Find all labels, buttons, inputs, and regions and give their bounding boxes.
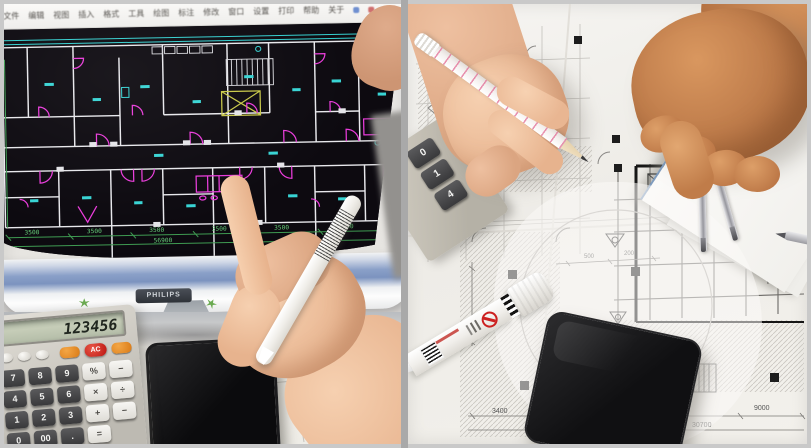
calc-key: 3: [59, 406, 83, 425]
calc-key: 2: [32, 408, 56, 427]
calculator-orange-key: [59, 346, 80, 359]
calculator-round-key: [35, 350, 49, 360]
dim-label: 3500: [149, 227, 164, 234]
calc-key: =: [87, 425, 111, 444]
calc-key: 4: [4, 390, 27, 409]
calc-key: +: [85, 404, 109, 423]
calculator-keypad: 7 8 9 % − 4 5 6 × ÷ 1 2 3 + − 0 00 . =: [4, 359, 140, 444]
calc-key: %: [82, 362, 106, 381]
calculator-orange-key: [111, 341, 132, 354]
menu-item: 工具: [128, 8, 144, 19]
calc-key: 6: [57, 385, 81, 404]
pencil-lead: [580, 155, 590, 164]
marker-red-logo-icon: [479, 309, 501, 331]
menu-item: 帮助: [303, 5, 319, 16]
calc-key: ÷: [110, 380, 134, 399]
dim-label: 3500: [87, 228, 102, 235]
menu-item: 修改: [203, 7, 219, 18]
dim-total-label: 56900: [154, 237, 173, 244]
calc-key: 8: [28, 366, 52, 385]
menu-item: 编辑: [28, 10, 44, 21]
menu-item: 关于: [328, 4, 344, 15]
menu-item: 插入: [78, 9, 94, 20]
calc-key: 9: [55, 364, 79, 383]
calc-key: 5: [30, 387, 54, 406]
blueprint-photo-panel: 500 200 3400 9000 30700 0 1 4: [408, 4, 807, 444]
monitor-brand-badge: PHILIPS: [136, 288, 192, 303]
calculator-round-key: [4, 353, 13, 363]
calculator: 123456 AC 7 8 9 % − 4 5 6 × ÷: [4, 304, 149, 444]
menu-item: 绘图: [153, 8, 169, 19]
menu-item: 格式: [103, 9, 119, 20]
calculator-ac-key: AC: [84, 343, 107, 358]
menu-item: 打印: [278, 5, 294, 16]
calculator-round-key: [18, 351, 32, 361]
marker-label-text: [474, 320, 481, 330]
menu-item: 文件: [4, 11, 19, 22]
calc-key: 1: [5, 411, 29, 430]
menu-item: 视图: [53, 10, 69, 21]
calc-key: ×: [84, 383, 108, 402]
calc-key: −: [109, 359, 133, 378]
menu-item: 设置: [253, 6, 269, 17]
calc-key: .: [60, 427, 84, 444]
dim-label: 3400: [492, 408, 508, 415]
cad-photo-panel: 文件 编辑 视图 插入 格式 工具 绘图 标注 修改 窗口 设置 打印 帮助 关…: [4, 4, 401, 444]
dim-label: 3500: [212, 226, 227, 233]
calc-key: −: [112, 401, 136, 420]
dim-label: 3500: [24, 229, 39, 236]
calc-key: 0: [7, 432, 31, 444]
menu-item: 窗口: [228, 6, 244, 17]
calc-key: 00: [33, 429, 57, 444]
toolbar-icon: [353, 6, 359, 12]
dim-label: 3500: [274, 224, 289, 231]
right-finger: [734, 156, 780, 192]
screenshot-frame: 文件 编辑 视图 插入 格式 工具 绘图 标注 修改 窗口 设置 打印 帮助 关…: [0, 0, 811, 448]
menu-item: 标注: [178, 7, 194, 18]
calc-key: 7: [4, 369, 25, 388]
dim-label: 9000: [754, 405, 770, 412]
photo-divider: [401, 0, 408, 448]
